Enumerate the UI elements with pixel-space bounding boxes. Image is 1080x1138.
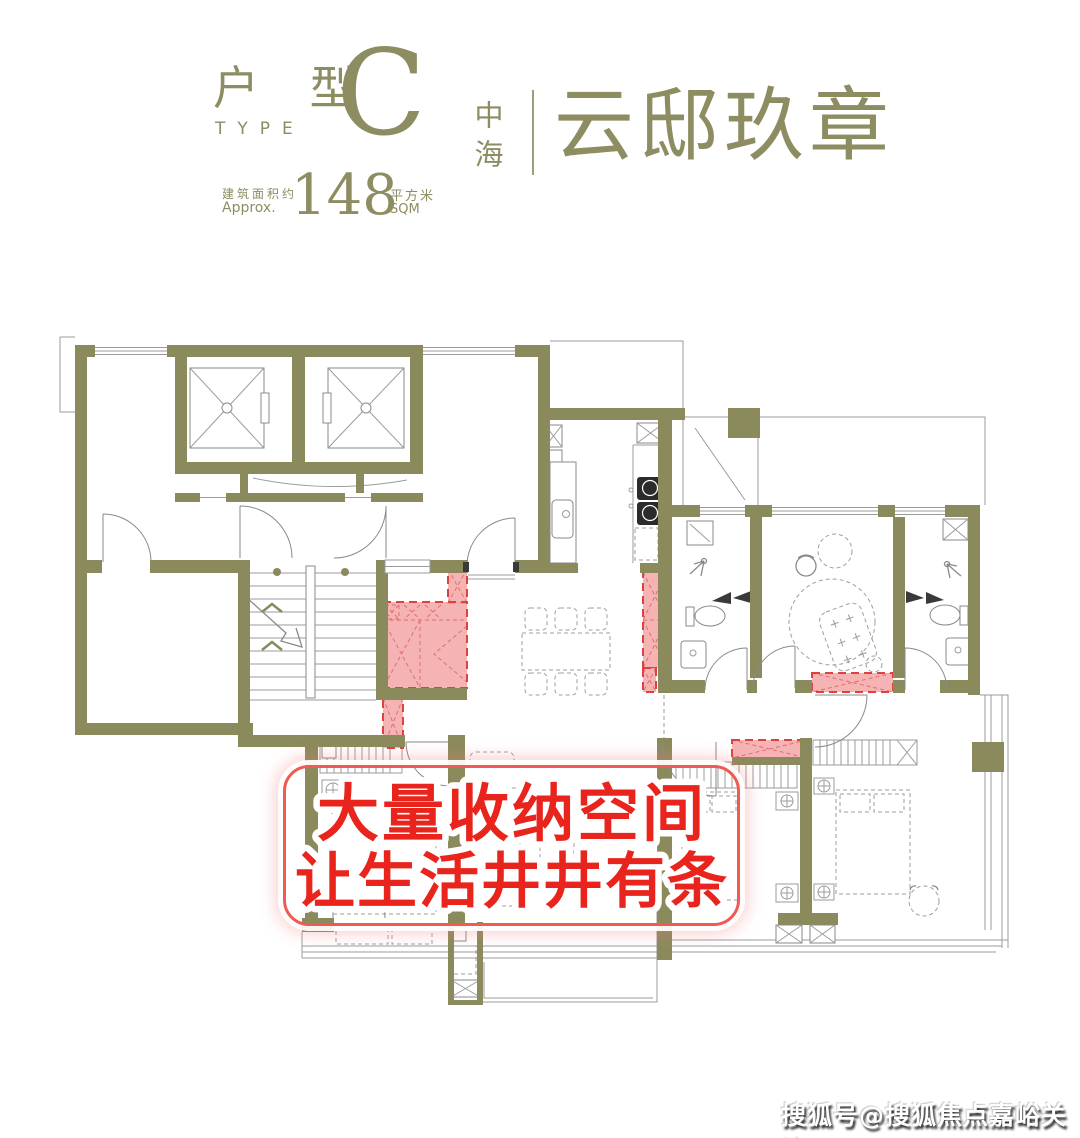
brand-project: 云邸玖章 [554,86,894,166]
type-label-en: TYPE [215,119,305,139]
bedroom-master [813,740,939,916]
watermark: 搜狐号@搜狐焦点嘉峪关站 [781,1096,1080,1138]
area-unit-en: SQM [390,202,420,217]
area-label-en: Approx. [222,200,276,216]
bathroom-left [681,521,751,668]
kitchen [545,423,664,563]
type-letter: C [336,34,426,152]
storage-highlight [383,569,893,758]
bathroom-right [906,519,970,665]
area-value: 148 [291,168,398,224]
dining-table [522,608,610,695]
brand-developer: 中海 [466,100,508,178]
annotation-box [283,765,740,926]
multipurpose-room [789,534,882,674]
elevator-icon [190,368,269,448]
floorplan-poster: 户 型 TYPE C 建筑面积约 Approx. 148 平方米 SQM 中海 … [0,0,1080,1138]
stairwell [246,566,376,700]
duct-swing-line [253,478,407,487]
elevator-icon [323,368,404,448]
brand-divider [532,90,534,175]
balcony [336,924,480,997]
